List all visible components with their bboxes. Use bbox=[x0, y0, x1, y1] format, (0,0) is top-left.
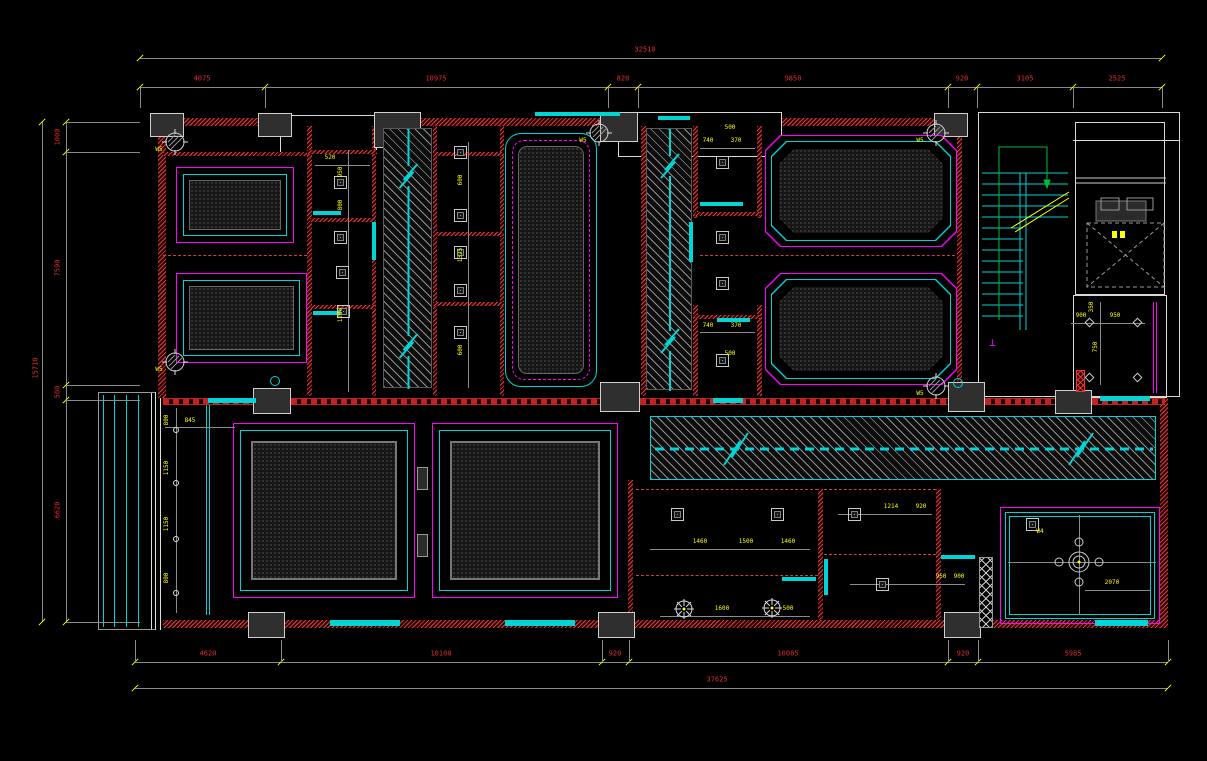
recessed-light-icon bbox=[454, 146, 467, 159]
window-bar bbox=[372, 222, 376, 260]
dim-text: 800 bbox=[164, 573, 170, 584]
recessed-light-icon bbox=[454, 326, 467, 339]
recessed-light-icon bbox=[334, 231, 347, 244]
dim-text: 4075 bbox=[194, 76, 211, 83]
light-core bbox=[777, 514, 778, 515]
recessed-light-icon bbox=[876, 578, 889, 591]
window-bar bbox=[713, 398, 743, 403]
structural-column bbox=[258, 113, 292, 137]
wall-corridor bbox=[985, 398, 1055, 405]
ceiling-panel-sw-2 bbox=[432, 423, 618, 598]
recessed-light-icon bbox=[454, 284, 467, 297]
dim-text: W4 bbox=[1036, 529, 1043, 535]
window-bar bbox=[208, 398, 256, 403]
wall-hatch bbox=[310, 218, 375, 222]
light-core bbox=[722, 237, 723, 238]
light-core bbox=[1032, 524, 1033, 525]
elevator bbox=[1075, 122, 1165, 295]
line bbox=[155, 392, 156, 630]
dim-text: 950 bbox=[338, 167, 344, 178]
wall-dashed bbox=[824, 554, 936, 556]
recessed-light-icon bbox=[334, 176, 347, 189]
dim-extension-line bbox=[977, 87, 978, 108]
stair-treads-icon bbox=[982, 173, 1068, 330]
window-bar bbox=[658, 116, 690, 120]
recessed-light-icon bbox=[716, 231, 729, 244]
ceiling-panel-nw-1 bbox=[176, 167, 294, 243]
light-core bbox=[677, 514, 678, 515]
dim-text: 4620 bbox=[200, 651, 217, 658]
wall-hatch bbox=[634, 620, 944, 628]
dim-line-bottom-overall bbox=[135, 688, 1168, 689]
window-bar bbox=[824, 559, 828, 595]
dim-extension-line bbox=[66, 122, 140, 123]
wall-hatch bbox=[818, 489, 823, 628]
downlight-circle bbox=[953, 378, 963, 388]
dim-text: 500 bbox=[725, 125, 736, 131]
window-bar bbox=[941, 555, 975, 559]
light-core bbox=[460, 290, 461, 291]
wall-dashed bbox=[824, 489, 936, 491]
dim-text: 500 bbox=[725, 351, 736, 357]
structural-column bbox=[944, 612, 981, 638]
wall-corridor bbox=[291, 398, 600, 405]
elevator-shaft-icon bbox=[1087, 223, 1164, 287]
ceiling-fan-icon bbox=[162, 129, 188, 155]
dim-text: W5 bbox=[155, 147, 162, 153]
recessed-light-icon bbox=[716, 156, 729, 169]
window-bar bbox=[535, 112, 620, 116]
line bbox=[1085, 590, 1150, 591]
wall-hatch bbox=[307, 126, 312, 396]
dim-text: 900 bbox=[1076, 313, 1087, 319]
staircase: ⊥ bbox=[981, 118, 1069, 397]
light-core bbox=[882, 584, 883, 585]
wall-hatch bbox=[163, 620, 248, 628]
dim-tick bbox=[1164, 684, 1171, 691]
line bbox=[650, 549, 810, 550]
light-core bbox=[460, 152, 461, 153]
wall-hatch bbox=[433, 126, 437, 396]
dim-text: 520 bbox=[325, 155, 336, 161]
downlight-circle bbox=[173, 590, 179, 596]
canopy-step-line bbox=[138, 395, 139, 627]
dim-text: 1000 bbox=[55, 129, 62, 146]
cad-viewport: 3251040751097582098509203105252546201010… bbox=[0, 0, 1207, 761]
wall-corridor bbox=[640, 398, 948, 405]
dim-text: 740 bbox=[703, 138, 714, 144]
line bbox=[700, 148, 755, 149]
light-core bbox=[722, 360, 723, 361]
floor-plan-canvas[interactable]: 3251040751097582098509203105252546201010… bbox=[0, 0, 1207, 761]
red-hatched-column bbox=[1076, 370, 1085, 392]
dim-text: 920 bbox=[957, 651, 970, 658]
dim-line-left-overall bbox=[42, 122, 43, 622]
shaft-duct-1 bbox=[383, 128, 432, 388]
dim-left-overall: 15710 bbox=[33, 357, 40, 378]
light-core bbox=[460, 332, 461, 333]
ceiling-panel-nw-2 bbox=[176, 273, 307, 363]
dim-extension-line bbox=[638, 87, 639, 108]
wall-dashed bbox=[700, 255, 955, 257]
panel-layer bbox=[189, 180, 281, 230]
line bbox=[206, 405, 207, 615]
dim-text: W5 bbox=[916, 138, 923, 144]
wall-hatch bbox=[372, 126, 376, 396]
hatched-column bbox=[979, 557, 993, 628]
line bbox=[700, 332, 755, 333]
chandelier-icon bbox=[673, 598, 695, 620]
dim-text: 1460 bbox=[693, 539, 707, 545]
downlight-circle bbox=[173, 480, 179, 486]
dim-extension-line bbox=[281, 640, 282, 662]
dim-text: 920 bbox=[956, 76, 969, 83]
downlight-circle bbox=[173, 427, 179, 433]
structural-column bbox=[253, 388, 291, 414]
dim-text: 920 bbox=[916, 504, 927, 510]
line bbox=[160, 398, 161, 630]
dim-extension-line bbox=[135, 640, 136, 662]
dim-text: 1150 bbox=[164, 461, 170, 475]
dim-line-left-segments bbox=[66, 122, 67, 622]
dim-text: 950 bbox=[936, 574, 947, 580]
window-bar bbox=[782, 577, 816, 581]
light-core bbox=[342, 272, 343, 273]
dim-tick bbox=[1158, 54, 1165, 61]
window-bar bbox=[313, 211, 341, 215]
dim-line-bottom-segments bbox=[135, 662, 1168, 663]
ceiling-fan-icon bbox=[923, 120, 949, 146]
dim-text: 1150 bbox=[164, 517, 170, 531]
structural-column bbox=[248, 612, 285, 638]
recessed-light-icon bbox=[848, 508, 861, 521]
ceiling-panel-ne-1 bbox=[765, 135, 957, 247]
dim-text: 350 bbox=[1089, 302, 1095, 313]
light-core bbox=[340, 182, 341, 183]
recessed-light-icon bbox=[716, 277, 729, 290]
wall-dashed bbox=[163, 255, 307, 257]
dim-extension-line bbox=[948, 640, 949, 662]
dim-text: 1600 bbox=[715, 606, 729, 612]
canopy-step-line bbox=[114, 395, 115, 627]
top-notch-left bbox=[280, 115, 377, 153]
dim-extension-line bbox=[602, 640, 603, 662]
structural-column bbox=[598, 612, 635, 638]
wall-dashed bbox=[636, 489, 818, 491]
line bbox=[176, 408, 177, 613]
break-line-icon bbox=[647, 129, 693, 391]
shaft-duct-2 bbox=[646, 128, 692, 390]
wall-hatch bbox=[307, 150, 377, 154]
recessed-light-icon bbox=[336, 266, 349, 279]
window-bar bbox=[505, 620, 575, 626]
window-bar bbox=[689, 222, 693, 262]
elevator-label-glyph bbox=[1120, 231, 1125, 238]
dim-text: 500 bbox=[55, 386, 62, 399]
break-line-icon bbox=[651, 417, 1157, 481]
structural-column bbox=[600, 382, 640, 412]
dim-text: 920 bbox=[609, 651, 622, 658]
panel-layer bbox=[779, 149, 943, 233]
dim-text: 7590 bbox=[55, 260, 62, 277]
dim-text: 740 bbox=[703, 323, 714, 329]
dim-extension-line bbox=[629, 640, 630, 662]
dim-top-overall: 32510 bbox=[634, 47, 655, 54]
elevator-cab-icon bbox=[1096, 201, 1146, 221]
entrance-canopy bbox=[98, 392, 156, 630]
door-leaf bbox=[417, 467, 428, 490]
wall-hatch bbox=[695, 212, 760, 216]
panel-layer bbox=[189, 286, 294, 350]
window-bar bbox=[330, 620, 400, 626]
dim-extension-line bbox=[978, 640, 979, 662]
dim-text: 800 bbox=[338, 200, 344, 211]
dim-text: 10100 bbox=[430, 651, 451, 658]
dim-text: 500 bbox=[783, 606, 794, 612]
ceiling-fan-icon bbox=[586, 120, 612, 146]
dim-text: W5 bbox=[155, 367, 162, 373]
recessed-light-icon bbox=[671, 508, 684, 521]
window-bar bbox=[1095, 620, 1148, 626]
dim-extension-line bbox=[608, 87, 609, 108]
dim-text: 3105 bbox=[1017, 76, 1034, 83]
dim-text: W5 bbox=[579, 138, 586, 144]
dim-text: 1500 bbox=[739, 539, 753, 545]
panel-layer bbox=[518, 146, 584, 374]
ceiling-panel-ne-2 bbox=[765, 273, 957, 385]
line bbox=[1153, 302, 1154, 393]
wall-hatch bbox=[1160, 398, 1168, 628]
light-core bbox=[722, 283, 723, 284]
break-line-icon bbox=[384, 129, 433, 389]
dim-text: 1200 bbox=[338, 308, 344, 322]
dim-extension-line bbox=[265, 87, 266, 108]
recessed-light-icon bbox=[771, 508, 784, 521]
dim-tick bbox=[38, 618, 45, 625]
dim-text: 370 bbox=[731, 138, 742, 144]
dim-text: 10975 bbox=[425, 76, 446, 83]
dim-text: 1214 bbox=[884, 504, 898, 510]
wall-hatch bbox=[782, 118, 934, 126]
dim-text: 600 bbox=[458, 175, 464, 186]
elevator-label-glyph bbox=[1112, 231, 1117, 238]
dim-text: 950 bbox=[1110, 313, 1121, 319]
light-core bbox=[722, 162, 723, 163]
dim-extension-line bbox=[66, 385, 140, 386]
ceiling-medallion bbox=[1051, 534, 1107, 590]
dim-text: 820 bbox=[617, 76, 630, 83]
wall-hatch bbox=[693, 126, 698, 218]
light-core bbox=[460, 215, 461, 216]
ceiling-panel-center bbox=[505, 133, 597, 387]
window-bar bbox=[700, 202, 743, 206]
recessed-light-icon bbox=[454, 209, 467, 222]
dim-text: 750 bbox=[1093, 342, 1099, 353]
line bbox=[850, 584, 965, 585]
dim-text: 10085 bbox=[777, 651, 798, 658]
dim-text: 5985 bbox=[1065, 651, 1082, 658]
dim-extension-line bbox=[1162, 87, 1163, 108]
canopy-edge bbox=[151, 393, 152, 629]
dim-line-top-segments bbox=[140, 87, 1162, 88]
line bbox=[209, 405, 210, 615]
wall-hatch bbox=[500, 126, 504, 396]
line bbox=[468, 142, 469, 388]
dim-line-top-overall bbox=[140, 58, 1162, 59]
line bbox=[1100, 302, 1101, 385]
stair-up-mark: ⊥ bbox=[989, 336, 996, 349]
wall-hatch bbox=[957, 126, 962, 396]
dim-text: 900 bbox=[954, 574, 965, 580]
dim-bottom-overall: 37625 bbox=[706, 677, 727, 684]
panel-layer bbox=[450, 441, 600, 580]
dim-text: 6620 bbox=[55, 502, 62, 519]
light-core bbox=[854, 514, 855, 515]
long-duct bbox=[650, 416, 1156, 480]
canopy-step-line bbox=[103, 395, 104, 627]
panel-layer bbox=[779, 287, 943, 371]
dim-text: W5 bbox=[916, 391, 923, 397]
dim-text: 845 bbox=[185, 418, 196, 424]
dim-text: 1325 bbox=[458, 248, 464, 262]
dim-text: 9850 bbox=[785, 76, 802, 83]
line bbox=[1156, 302, 1157, 393]
canopy-step-line bbox=[126, 395, 127, 627]
wall-hatch bbox=[628, 480, 633, 628]
chandelier-icon bbox=[761, 597, 783, 619]
dim-extension-line bbox=[1073, 87, 1074, 108]
dim-text: 2070 bbox=[1105, 580, 1119, 586]
dim-extension-line bbox=[948, 87, 949, 108]
dim-extension-line bbox=[140, 87, 141, 108]
ceiling-fan-icon bbox=[923, 373, 949, 399]
ceiling-panel-sw-1 bbox=[233, 423, 415, 598]
dim-text: 1460 bbox=[781, 539, 795, 545]
window-bar bbox=[1100, 396, 1150, 401]
downlight-circle bbox=[270, 376, 280, 386]
dim-text: 800 bbox=[164, 415, 170, 426]
panel-layer bbox=[251, 441, 397, 580]
downlight-circle bbox=[173, 536, 179, 542]
dim-extension-line bbox=[66, 152, 140, 153]
ceiling-fan-icon bbox=[162, 349, 188, 375]
dim-extension-line bbox=[1168, 640, 1169, 662]
door-leaf bbox=[417, 534, 428, 557]
light-core bbox=[340, 237, 341, 238]
wall-hatch bbox=[757, 126, 762, 218]
dim-text: 2525 bbox=[1109, 76, 1126, 83]
dim-text: 370 bbox=[731, 323, 742, 329]
dim-text: 600 bbox=[458, 345, 464, 356]
